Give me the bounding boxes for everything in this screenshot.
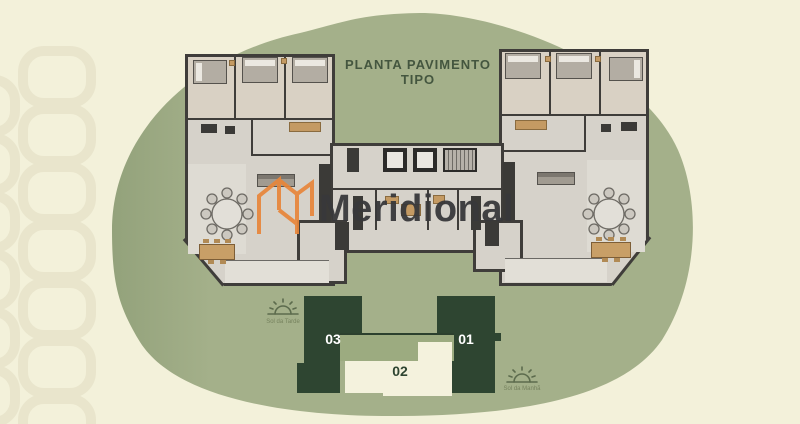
chair	[596, 237, 602, 241]
nightstand	[595, 56, 601, 62]
nightstand	[545, 56, 551, 62]
sun-label-afternoon: Sol da Tarde	[251, 319, 315, 325]
sunrise-icon	[505, 361, 539, 389]
unit-label-01: 01	[437, 331, 495, 347]
watermark: Meridional	[255, 174, 315, 238]
interior-wall	[251, 118, 253, 156]
sofa	[537, 172, 575, 185]
bath-fixture	[201, 124, 217, 133]
chair	[614, 258, 620, 262]
unit-label-02: 02	[380, 363, 420, 379]
elevator	[383, 148, 407, 172]
unit-block-01-tab	[495, 333, 501, 341]
sunset-icon	[266, 293, 300, 321]
bed	[556, 53, 592, 79]
bed	[292, 57, 328, 83]
bed	[609, 57, 643, 81]
bed-pillow	[245, 60, 275, 66]
bed-pillow	[196, 63, 202, 81]
interior-wall	[188, 118, 332, 120]
bed-pillow	[634, 60, 640, 78]
bath-fixture	[621, 122, 637, 131]
stairs	[443, 148, 477, 172]
watermark-brand: Meridional	[319, 188, 514, 231]
interior-wall	[502, 114, 646, 116]
chair	[602, 258, 608, 262]
elevator	[413, 148, 437, 172]
page-title: PLANTA PAVIMENTO TIPO	[333, 57, 503, 87]
bath-fixture	[225, 126, 235, 134]
keyplan: 03 02 01	[295, 293, 507, 399]
bath-fixture	[601, 124, 611, 132]
unit-block-02-step	[383, 393, 452, 396]
bed-pillow	[559, 56, 589, 62]
interior-wall	[584, 114, 586, 152]
nightstand	[229, 60, 235, 66]
bed-pillow	[295, 60, 325, 66]
chair	[208, 260, 214, 264]
interior-wall	[251, 154, 332, 156]
bed	[193, 60, 227, 84]
bed	[505, 53, 541, 79]
chair	[214, 239, 220, 243]
wood-dining-table	[591, 242, 631, 258]
chair	[220, 260, 226, 264]
unit-label-03: 03	[304, 331, 362, 347]
round-dining-table	[199, 186, 255, 242]
nightstand	[281, 58, 287, 64]
chair	[203, 239, 209, 243]
bed-pillow	[508, 56, 538, 62]
bed	[242, 57, 278, 83]
round-dining-table	[581, 186, 637, 242]
sun-label-morning: Sol da Manhã	[490, 386, 554, 392]
meridional-monogram-icon	[255, 174, 315, 238]
wood-dining-table	[199, 244, 235, 260]
wardrobe	[515, 120, 547, 130]
shaft	[347, 148, 359, 172]
marketing-floorplan-page: PLANTA PAVIMENTO TIPO Meridional 03 02 0…	[0, 0, 800, 424]
chair	[225, 239, 231, 243]
chair	[620, 237, 626, 241]
balcony-right	[505, 258, 607, 282]
balcony-left	[225, 260, 329, 283]
chair	[608, 237, 614, 241]
interior-wall	[502, 150, 586, 152]
wardrobe	[289, 122, 321, 132]
